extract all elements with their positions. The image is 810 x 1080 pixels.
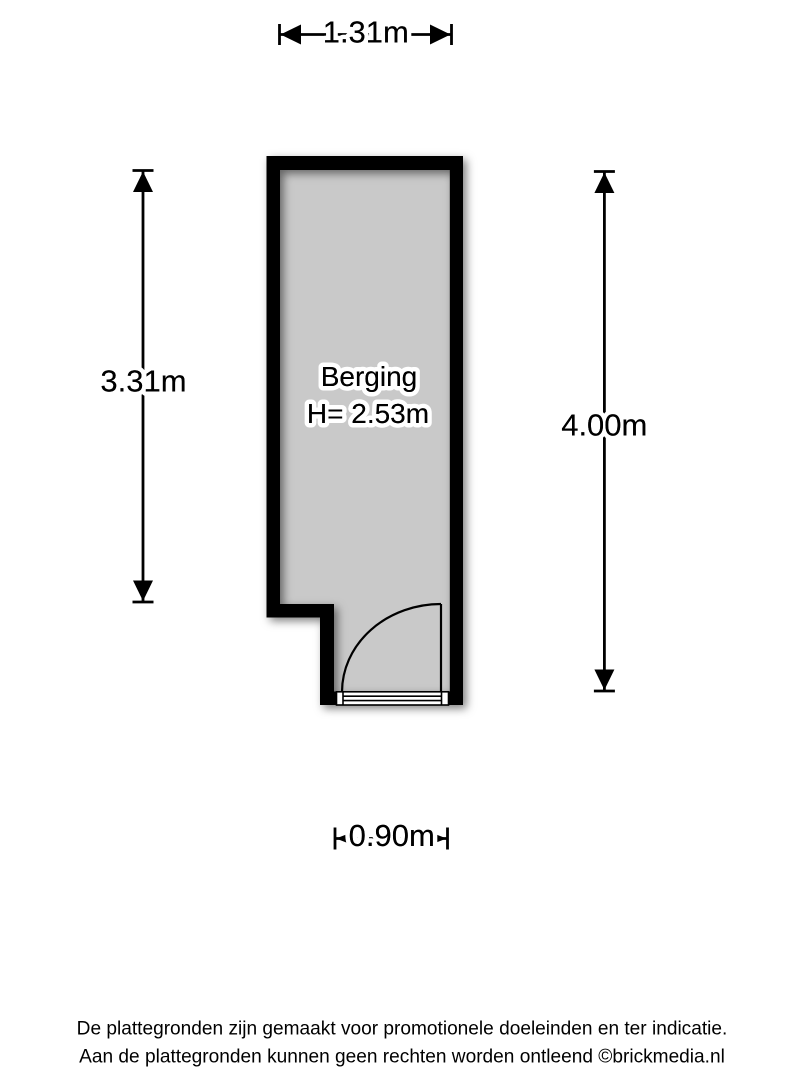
svg-text:De plattegronden zijn gemaakt: De plattegronden zijn gemaakt voor promo… <box>77 1019 728 1040</box>
svg-text:Berging: Berging <box>321 361 418 392</box>
svg-text:H= 2.53m: H= 2.53m <box>307 398 429 429</box>
svg-text:1.31m: 1.31m <box>323 15 409 50</box>
svg-text:3.31m: 3.31m <box>100 364 186 399</box>
svg-text:Aan de plattegronden kunnen ge: Aan de plattegronden kunnen geen rechten… <box>79 1047 725 1068</box>
svg-text:0.90m: 0.90m <box>349 818 435 853</box>
svg-text:4.00m: 4.00m <box>561 408 647 443</box>
